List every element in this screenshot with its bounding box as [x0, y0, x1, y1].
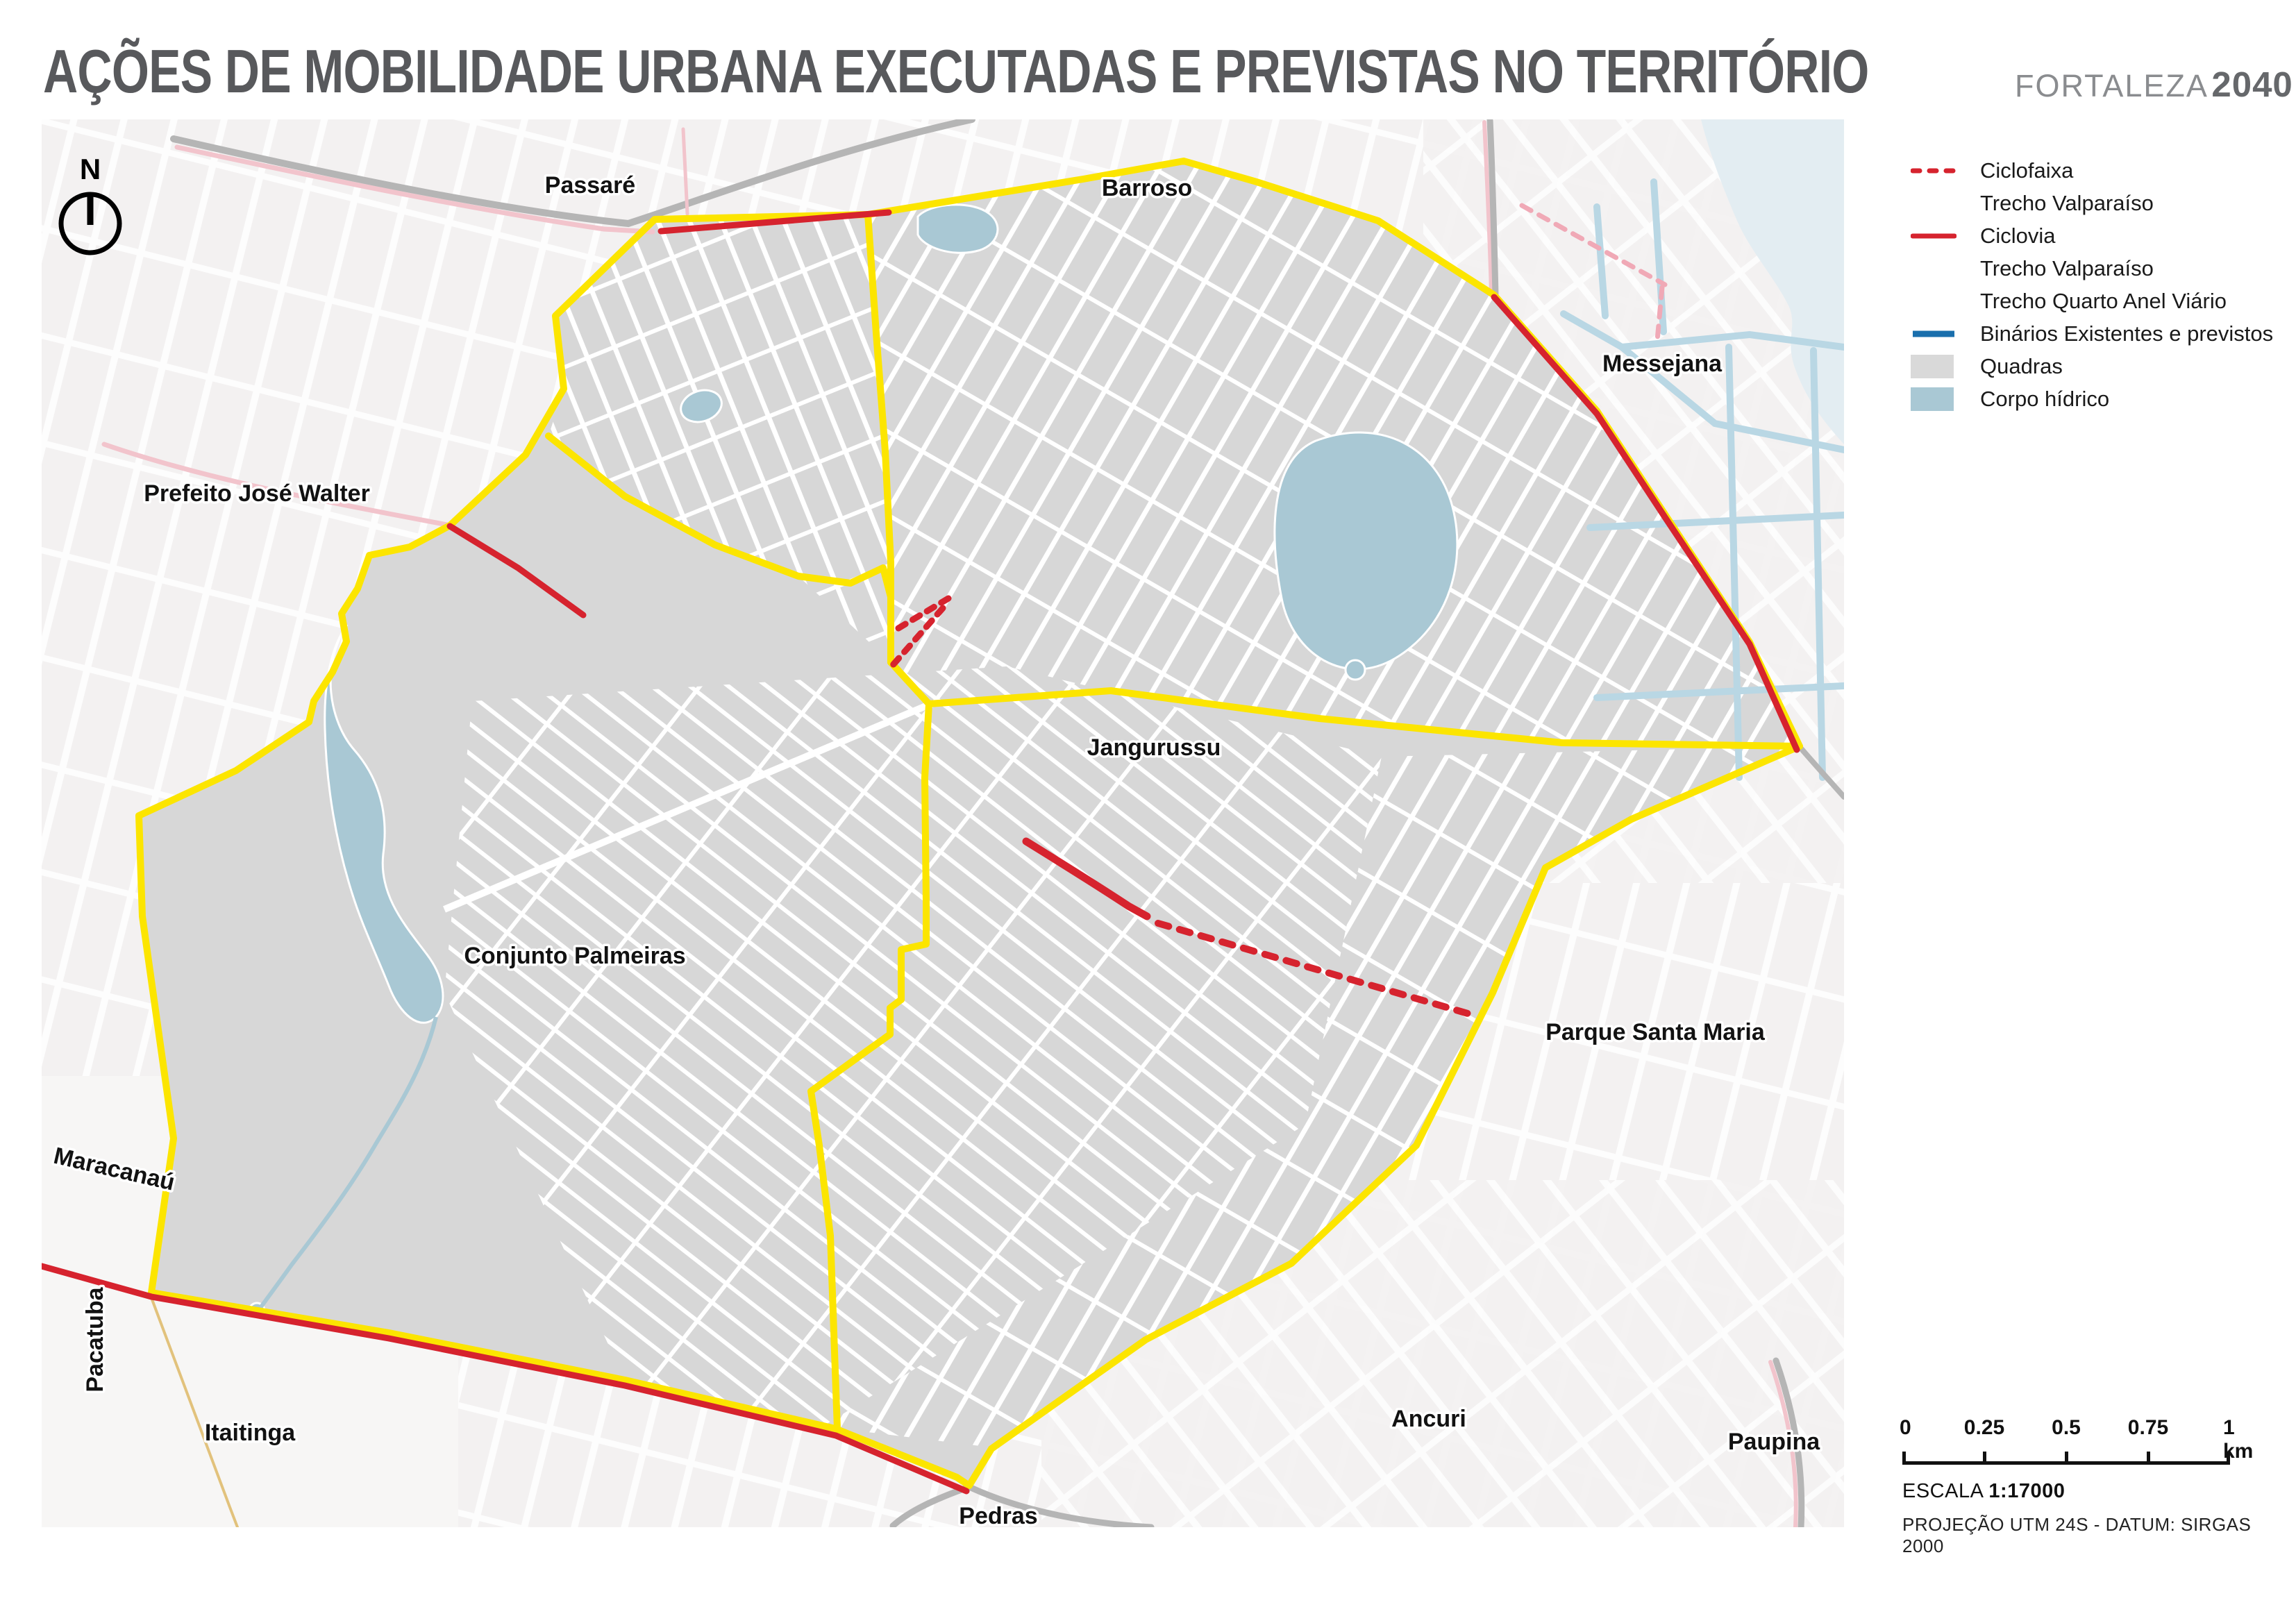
fortaleza-2040-logo: FORTALEZA 2040: [2015, 64, 2293, 105]
legend-row-trecho-quarto-anel: Trecho Quarto Anel Viário: [1911, 285, 2273, 317]
scalebar-tick-025: 0.25: [1964, 1416, 2004, 1440]
map-label-barroso: Barroso: [1102, 175, 1192, 201]
brand-name: FORTALEZA: [2015, 68, 2209, 103]
ciclofaixa-dashed-line-icon: [1911, 167, 1980, 175]
scalebar-tick-075: 0.75: [2128, 1416, 2168, 1440]
legend-row-binarios: Binários Existentes e previstos: [1911, 317, 2273, 350]
legend-row-trecho-valparaiso-2: Trecho Valparaíso: [1911, 252, 2273, 285]
map-label-pacatuba: Pacatuba: [82, 1286, 108, 1392]
scalebar: 0 0.25 0.5 0.75 1 km ESCALA 1:17000 PROJ…: [1902, 1416, 2263, 1557]
scalebar-tick-0: 0: [1900, 1416, 1911, 1440]
legend-row-ciclofaixa: Ciclofaixa: [1911, 154, 2273, 187]
legend-row-quadras: Quadras: [1911, 350, 2273, 382]
map-label-jangurussu: Jangurussu: [1087, 734, 1221, 761]
legend-row-trecho-valparaiso-1: Trecho Valparaíso: [1911, 187, 2273, 219]
binarios-blue-line-icon: [1911, 330, 1980, 338]
brand-year: 2040: [2211, 65, 2293, 104]
map-label-itaitinga: Itaitinga: [205, 1420, 296, 1446]
scalebar-tick-labels: 0 0.25 0.5 0.75 1 km: [1902, 1416, 2263, 1441]
map-label-messejana: Messejana: [1602, 351, 1723, 377]
map-label-parque-santa-maria: Parque Santa Maria: [1545, 1019, 1766, 1045]
ciclovia-solid-line-icon: [1911, 232, 1980, 240]
legend-row-ciclovia: Ciclovia: [1911, 219, 2273, 252]
map-label-pedras: Pedras: [959, 1503, 1037, 1527]
corpo-hidrico-swatch-icon: [1911, 387, 1980, 411]
map-label-prefeito-jose-walter: Prefeito José Walter: [144, 480, 370, 507]
page-title: AÇÕES DE MOBILIDADE URBANA EXECUTADAS E …: [43, 36, 1869, 107]
legend: Ciclofaixa Trecho Valparaíso Ciclovia Tr…: [1911, 154, 2273, 415]
map: Passaré Barroso Prefeito José Walter Mes…: [42, 119, 1844, 1527]
page: { "header": { "title": "AÇÕES DE MOBILID…: [0, 0, 2296, 1623]
map-label-passare: Passaré: [545, 172, 635, 199]
map-label-conjunto-palmeiras: Conjunto Palmeiras: [464, 943, 685, 969]
legend-row-corpo-hidrico: Corpo hídrico: [1911, 382, 2273, 415]
north-label: N: [80, 153, 101, 185]
quadras-swatch-icon: [1911, 355, 1980, 378]
projection-text: PROJEÇÃO UTM 24S - DATUM: SIRGAS 2000: [1902, 1514, 2263, 1557]
scalebar-tick-05: 0.5: [2052, 1416, 2081, 1440]
scale-text: ESCALA 1:17000: [1902, 1480, 2263, 1503]
pond-barroso: [918, 205, 998, 253]
scalebar-bar: [1902, 1451, 2230, 1465]
map-label-ancuri: Ancuri: [1391, 1406, 1466, 1432]
map-label-paupina: Paupina: [1728, 1429, 1820, 1455]
